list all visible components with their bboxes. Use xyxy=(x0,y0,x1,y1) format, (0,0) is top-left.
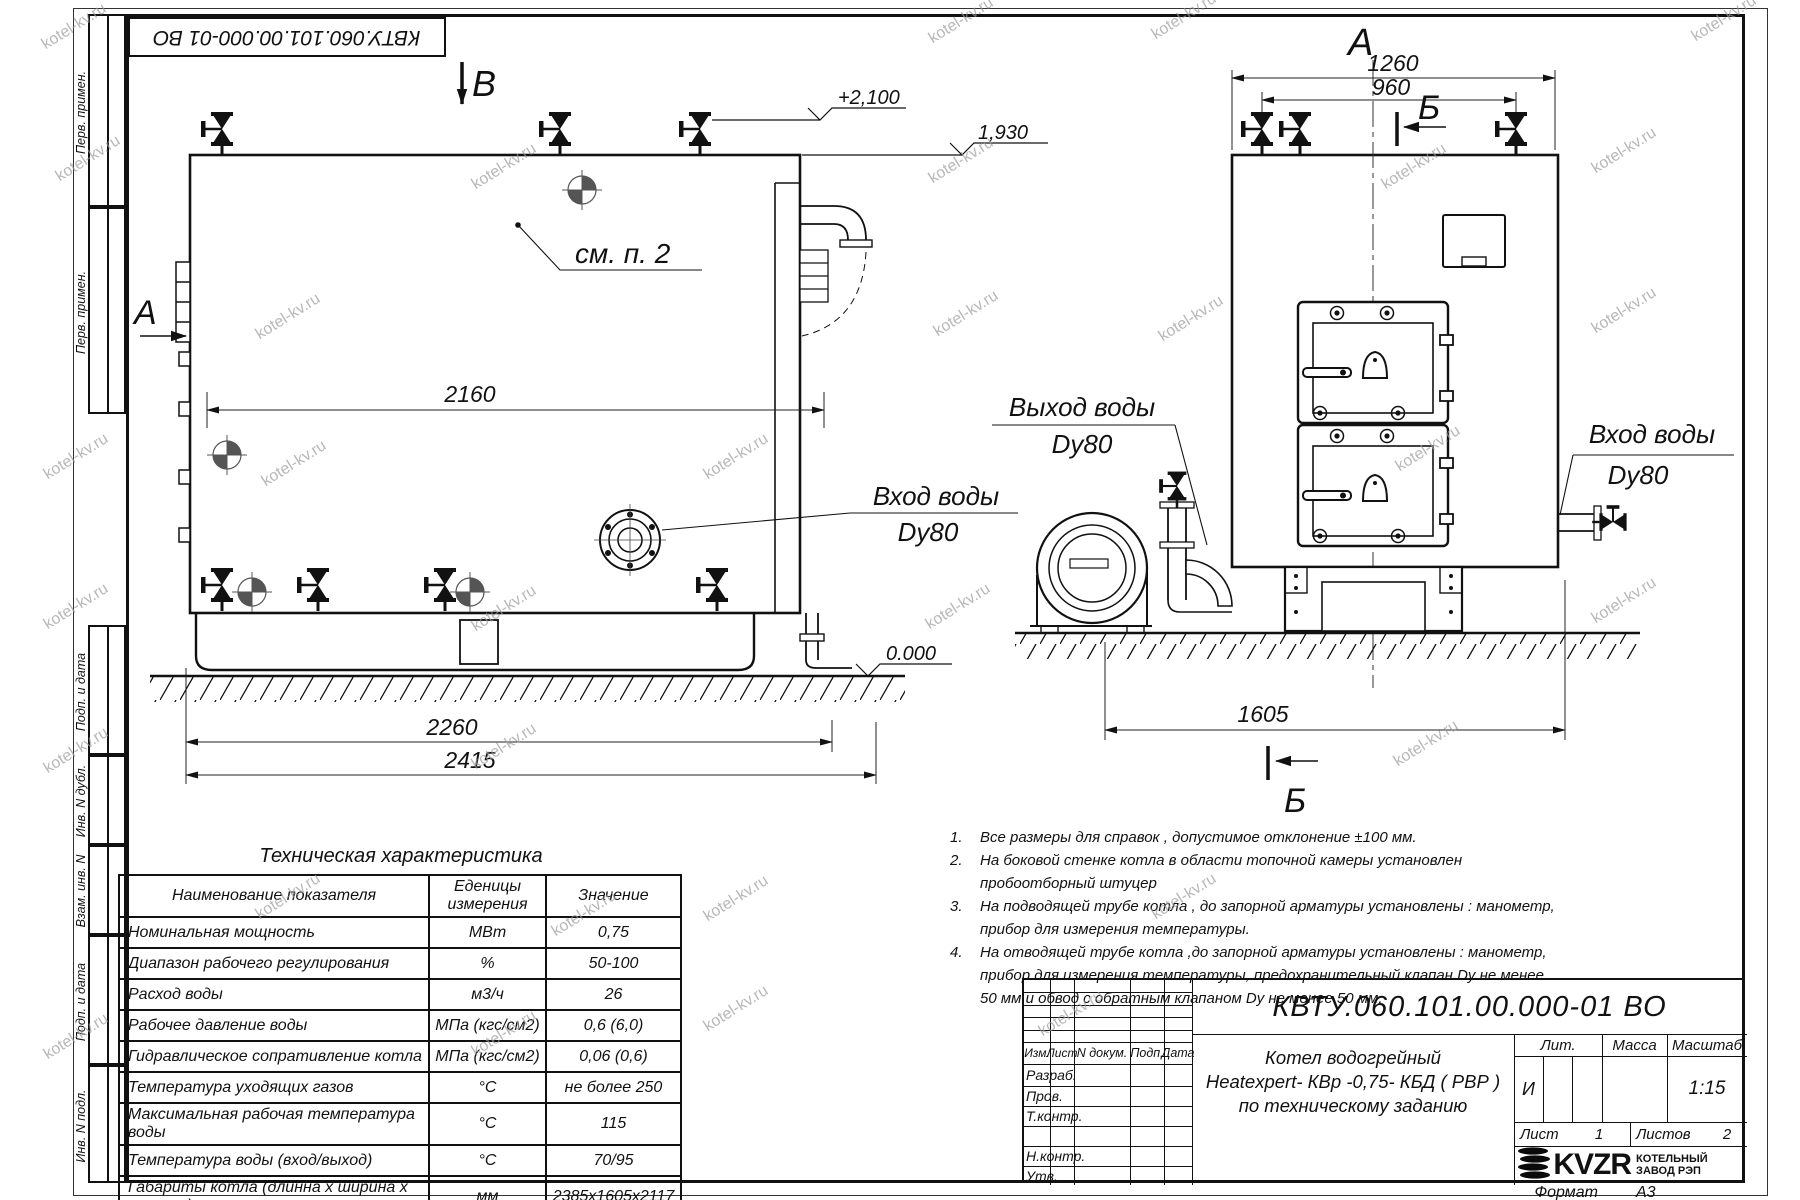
outlet-front-label: Выход воды xyxy=(1009,392,1155,422)
lit-label: Лит. xyxy=(1514,1034,1602,1056)
ground-hatch xyxy=(1015,634,1640,659)
role-prov: Пров. xyxy=(1026,1086,1074,1106)
role-utv: Утв. xyxy=(1026,1166,1074,1185)
front-view xyxy=(1015,60,1640,688)
note-number: 2. xyxy=(950,849,980,895)
inlet-side-label: Вход воды xyxy=(873,481,999,511)
col-podp: Подп. xyxy=(1130,1042,1164,1064)
role-tkontr: Т.контр. xyxy=(1026,1106,1074,1126)
section-b-label-top: Б xyxy=(1418,89,1440,127)
massa-label: Масса xyxy=(1602,1034,1667,1056)
view-a-label-front: А xyxy=(1346,22,1373,64)
side-view xyxy=(150,112,905,702)
dim-2260: 2260 xyxy=(425,714,477,740)
dim-960: 960 xyxy=(1372,74,1411,100)
section-b-label-bottom: Б xyxy=(1284,782,1306,820)
product-name-line: Heatexpert- КВр -0,75- КБД ( РВР ) xyxy=(1206,1070,1500,1094)
sheet-value: 1 xyxy=(1584,1122,1614,1146)
role-razrab: Разраб. xyxy=(1026,1064,1074,1086)
logo-text: KVZR xyxy=(1553,1148,1631,1182)
callout-see-p2: см. п. 2 xyxy=(575,238,671,269)
table-row: Рабочее давление водыМПа (кгс/см2)0,6 (6… xyxy=(119,1010,681,1041)
table-row: Диапазон рабочего регулирования%50-100 xyxy=(119,948,681,979)
vent-panel xyxy=(1443,215,1505,267)
note-number: 3. xyxy=(950,895,980,941)
note-item: 2. На боковой стенке котла в области топ… xyxy=(950,849,1558,895)
pedestal xyxy=(1285,567,1462,631)
sheets-label: Листов xyxy=(1636,1122,1696,1146)
note-item: 1. Все размеры для справок , допустимое … xyxy=(950,826,1558,849)
blower-fan xyxy=(1030,513,1152,633)
table-row: Температура воды (вход/выход)°С70/95 xyxy=(119,1145,681,1176)
scale-value: 1:15 xyxy=(1667,1056,1747,1122)
note-number: 4. xyxy=(950,941,980,1010)
table-row: Номинальная мощностьМВт0,75 xyxy=(119,917,681,948)
table-row: Температура уходящих газов°Сне более 250 xyxy=(119,1072,681,1103)
skid-base xyxy=(196,613,852,670)
dim-1605: 1605 xyxy=(1237,701,1288,727)
inlet-front-label: Вход воды xyxy=(1589,419,1715,449)
table-row: Габариты котла (длинна х ширина х высота… xyxy=(119,1176,681,1200)
outlet-assembly xyxy=(1160,502,1232,612)
view-a-label-side: А xyxy=(132,294,157,332)
title-block: Изм. Лист N докум. Подп. Дата Разраб. Пр… xyxy=(1022,978,1745,1183)
drawing-sheet: Перв. примен. Перв. примен. Подп. и дата… xyxy=(0,0,1800,1200)
drawing-designation: КВТУ.060.101.00.000-01 ВО xyxy=(1192,980,1747,1034)
product-name-line: по техническому заданию xyxy=(1239,1094,1468,1118)
ground-hatch xyxy=(150,677,905,702)
sheets-value: 2 xyxy=(1712,1122,1742,1146)
col-data: Дата xyxy=(1164,1042,1192,1064)
elevation-0000: 0.000 xyxy=(886,643,936,665)
product-name: Котел водогрейный Heatexpert- КВр -0,75-… xyxy=(1192,1034,1514,1185)
format-value: А3 xyxy=(1636,1184,1656,1200)
side-brackets xyxy=(176,262,190,542)
inlet-front-dn: Dy80 xyxy=(1608,460,1669,490)
note-text: На подводящей трубе котла , до запорной … xyxy=(980,895,1558,941)
flue-elbow xyxy=(800,206,872,336)
format-label: Формат xyxy=(1534,1184,1598,1200)
sheet-label: Лист xyxy=(1520,1122,1570,1146)
table-row: Максимальная рабочая температура воды°С1… xyxy=(119,1103,681,1145)
note-number: 1. xyxy=(950,826,980,849)
org-name: КОТЕЛЬНЫЙ ЗАВОД РЭП xyxy=(1636,1153,1708,1177)
section-v-label: В xyxy=(472,63,496,104)
col-list: Лист xyxy=(1050,1042,1074,1064)
masshtab-label: Масштаб xyxy=(1667,1034,1747,1056)
col-ndoc: N докум. xyxy=(1074,1042,1130,1064)
spec-table: Наименование показателя Еденицы измерени… xyxy=(118,874,682,1200)
note-text: Все размеры для справок , допустимое отк… xyxy=(980,826,1558,849)
note-item: 3. На подводящей трубе котла , до запорн… xyxy=(950,895,1558,941)
manufacturer-logo: KVZR КОТЕЛЬНЫЙ ЗАВОД РЭП xyxy=(1516,1146,1745,1183)
format-note: Формат А3 xyxy=(1455,1184,1735,1200)
role-nkontr: Н.контр. xyxy=(1026,1146,1074,1166)
table-row: Гидравлическое сопративление котлаМПа (к… xyxy=(119,1041,681,1072)
kvzr-coil-icon xyxy=(1516,1146,1552,1180)
elevation-2100: +2,100 xyxy=(838,87,900,109)
product-name-line: Котел водогрейный xyxy=(1265,1046,1441,1070)
dim-2160: 2160 xyxy=(443,381,495,407)
note-text: На боковой стенке котла в области топочн… xyxy=(980,849,1558,895)
dim-1260: 1260 xyxy=(1367,50,1418,76)
col-header-units: Еденицы измерения xyxy=(429,875,546,917)
spec-table-title: Техническая характеристика xyxy=(118,845,684,868)
table-row: Расход водым3/ч26 xyxy=(119,979,681,1010)
outlet-front-dn: Dy80 xyxy=(1052,429,1113,459)
inlet-side-dn: Dy80 xyxy=(898,517,959,547)
lit-value: И xyxy=(1514,1056,1543,1122)
